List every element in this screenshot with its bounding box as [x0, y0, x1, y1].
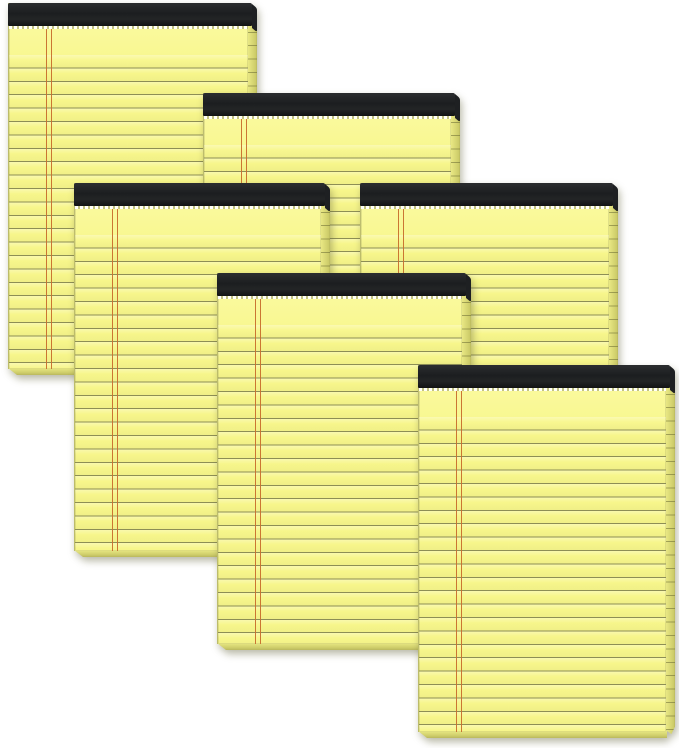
- red-margin-line: [255, 297, 261, 644]
- perforation-line: [9, 26, 248, 29]
- red-margin-line: [456, 389, 462, 732]
- perforation-line: [419, 388, 666, 391]
- page-stack-bottom-edge: [418, 731, 667, 738]
- perforation-line: [361, 206, 609, 209]
- binding-strip: [217, 273, 466, 296]
- binding-strip: [203, 93, 455, 116]
- red-margin-line: [46, 27, 52, 369]
- page-stack-side-edge: [666, 367, 675, 734]
- binding-strip: [418, 365, 670, 388]
- binding-strip: [8, 3, 252, 26]
- perforation-line: [204, 116, 451, 119]
- red-margin-line: [112, 207, 118, 551]
- product-photo-canvas: [0, 0, 679, 748]
- binding-strip: [74, 183, 325, 206]
- perforation-line: [218, 296, 462, 299]
- perforation-line: [75, 206, 321, 209]
- binding-strip: [360, 183, 613, 206]
- legal-pad-bottom-right: [418, 365, 675, 738]
- pad-paper: [418, 365, 666, 732]
